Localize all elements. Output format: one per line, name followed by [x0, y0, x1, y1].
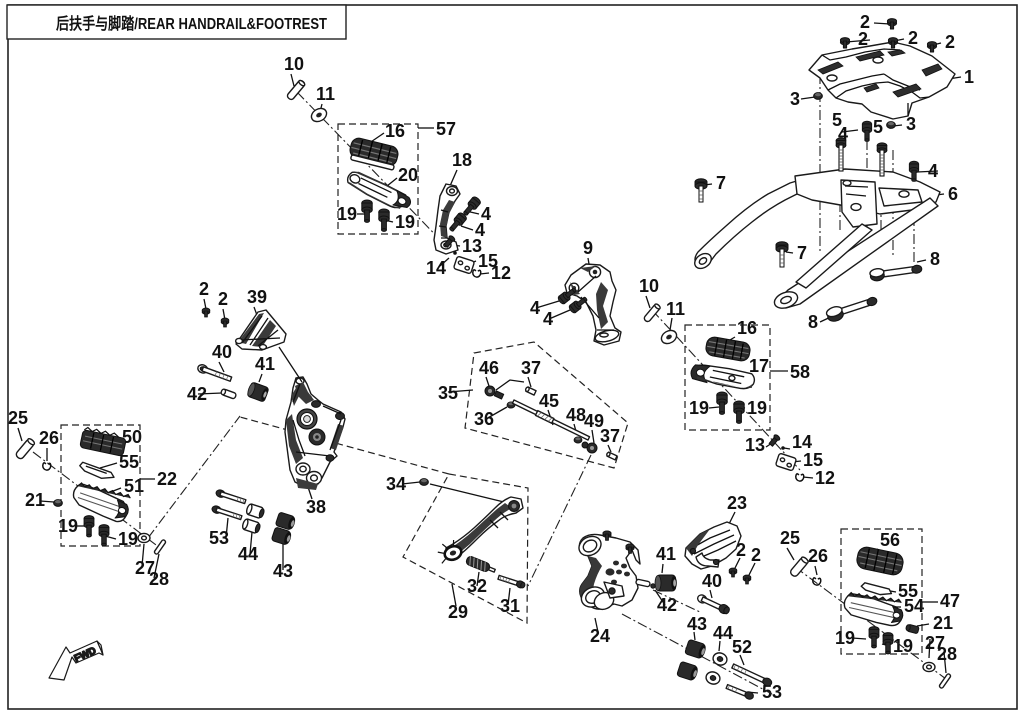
- svg-text:37: 37: [600, 426, 620, 446]
- svg-text:2: 2: [908, 28, 918, 48]
- svg-text:26: 26: [39, 428, 59, 448]
- svg-text:56: 56: [880, 530, 900, 550]
- svg-text:25: 25: [780, 528, 800, 548]
- svg-text:16: 16: [737, 318, 757, 338]
- svg-text:7: 7: [716, 173, 726, 193]
- svg-text:28: 28: [149, 569, 169, 589]
- svg-text:2: 2: [199, 279, 209, 299]
- svg-text:19: 19: [337, 204, 357, 224]
- svg-text:38: 38: [306, 497, 326, 517]
- svg-text:21: 21: [933, 613, 953, 633]
- svg-text:11: 11: [666, 299, 685, 319]
- svg-text:19: 19: [893, 636, 913, 656]
- svg-text:3: 3: [906, 114, 916, 134]
- svg-text:37: 37: [521, 358, 541, 378]
- svg-text:40: 40: [702, 571, 722, 591]
- svg-text:19: 19: [395, 212, 415, 232]
- svg-text:41: 41: [656, 544, 676, 564]
- svg-text:22: 22: [157, 469, 177, 489]
- svg-text:35: 35: [438, 383, 458, 403]
- svg-text:58: 58: [790, 362, 810, 382]
- svg-text:45: 45: [539, 391, 559, 411]
- svg-text:1: 1: [964, 67, 974, 87]
- svg-text:47: 47: [940, 591, 960, 611]
- svg-text:2: 2: [218, 289, 228, 309]
- svg-text:4: 4: [543, 309, 553, 329]
- svg-text:3: 3: [790, 89, 800, 109]
- svg-text:8: 8: [808, 312, 818, 332]
- svg-text:40: 40: [212, 342, 232, 362]
- svg-text:52: 52: [732, 637, 752, 657]
- svg-text:44: 44: [238, 544, 258, 564]
- svg-text:14: 14: [792, 432, 812, 452]
- svg-text:26: 26: [808, 546, 828, 566]
- svg-text:7: 7: [797, 243, 807, 263]
- svg-text:14: 14: [426, 258, 446, 278]
- svg-text:36: 36: [474, 409, 494, 429]
- svg-text:19: 19: [689, 398, 709, 418]
- svg-text:31: 31: [500, 596, 520, 616]
- svg-text:8: 8: [930, 249, 940, 269]
- svg-text:20: 20: [398, 165, 418, 185]
- svg-text:15: 15: [803, 450, 823, 470]
- svg-text:19: 19: [747, 398, 767, 418]
- svg-text:54: 54: [904, 596, 924, 616]
- svg-text:9: 9: [583, 238, 593, 258]
- svg-text:29: 29: [448, 602, 468, 622]
- svg-text:57: 57: [436, 119, 456, 139]
- svg-text:18: 18: [452, 150, 472, 170]
- svg-text:46: 46: [479, 358, 499, 378]
- svg-text:11: 11: [316, 84, 335, 104]
- svg-text:25: 25: [8, 408, 28, 428]
- svg-text:10: 10: [284, 54, 304, 74]
- svg-text:39: 39: [247, 287, 267, 307]
- svg-text:后扶手与脚踏/REAR HANDRAIL&FOOTREST: 后扶手与脚踏/REAR HANDRAIL&FOOTREST: [56, 14, 327, 33]
- svg-text:12: 12: [491, 263, 511, 283]
- svg-text:41: 41: [255, 354, 275, 374]
- svg-text:12: 12: [815, 468, 835, 488]
- svg-text:4: 4: [530, 298, 540, 318]
- svg-text:43: 43: [687, 614, 707, 634]
- svg-text:13: 13: [745, 435, 765, 455]
- svg-text:23: 23: [727, 493, 747, 513]
- svg-text:10: 10: [639, 276, 659, 296]
- svg-text:28: 28: [937, 644, 957, 664]
- svg-text:2: 2: [751, 545, 761, 565]
- svg-text:2: 2: [945, 32, 955, 52]
- svg-text:17: 17: [749, 356, 769, 376]
- svg-text:21: 21: [25, 490, 45, 510]
- svg-text:6: 6: [948, 184, 958, 204]
- svg-text:24: 24: [590, 626, 610, 646]
- svg-text:5: 5: [873, 117, 883, 137]
- svg-text:44: 44: [713, 623, 733, 643]
